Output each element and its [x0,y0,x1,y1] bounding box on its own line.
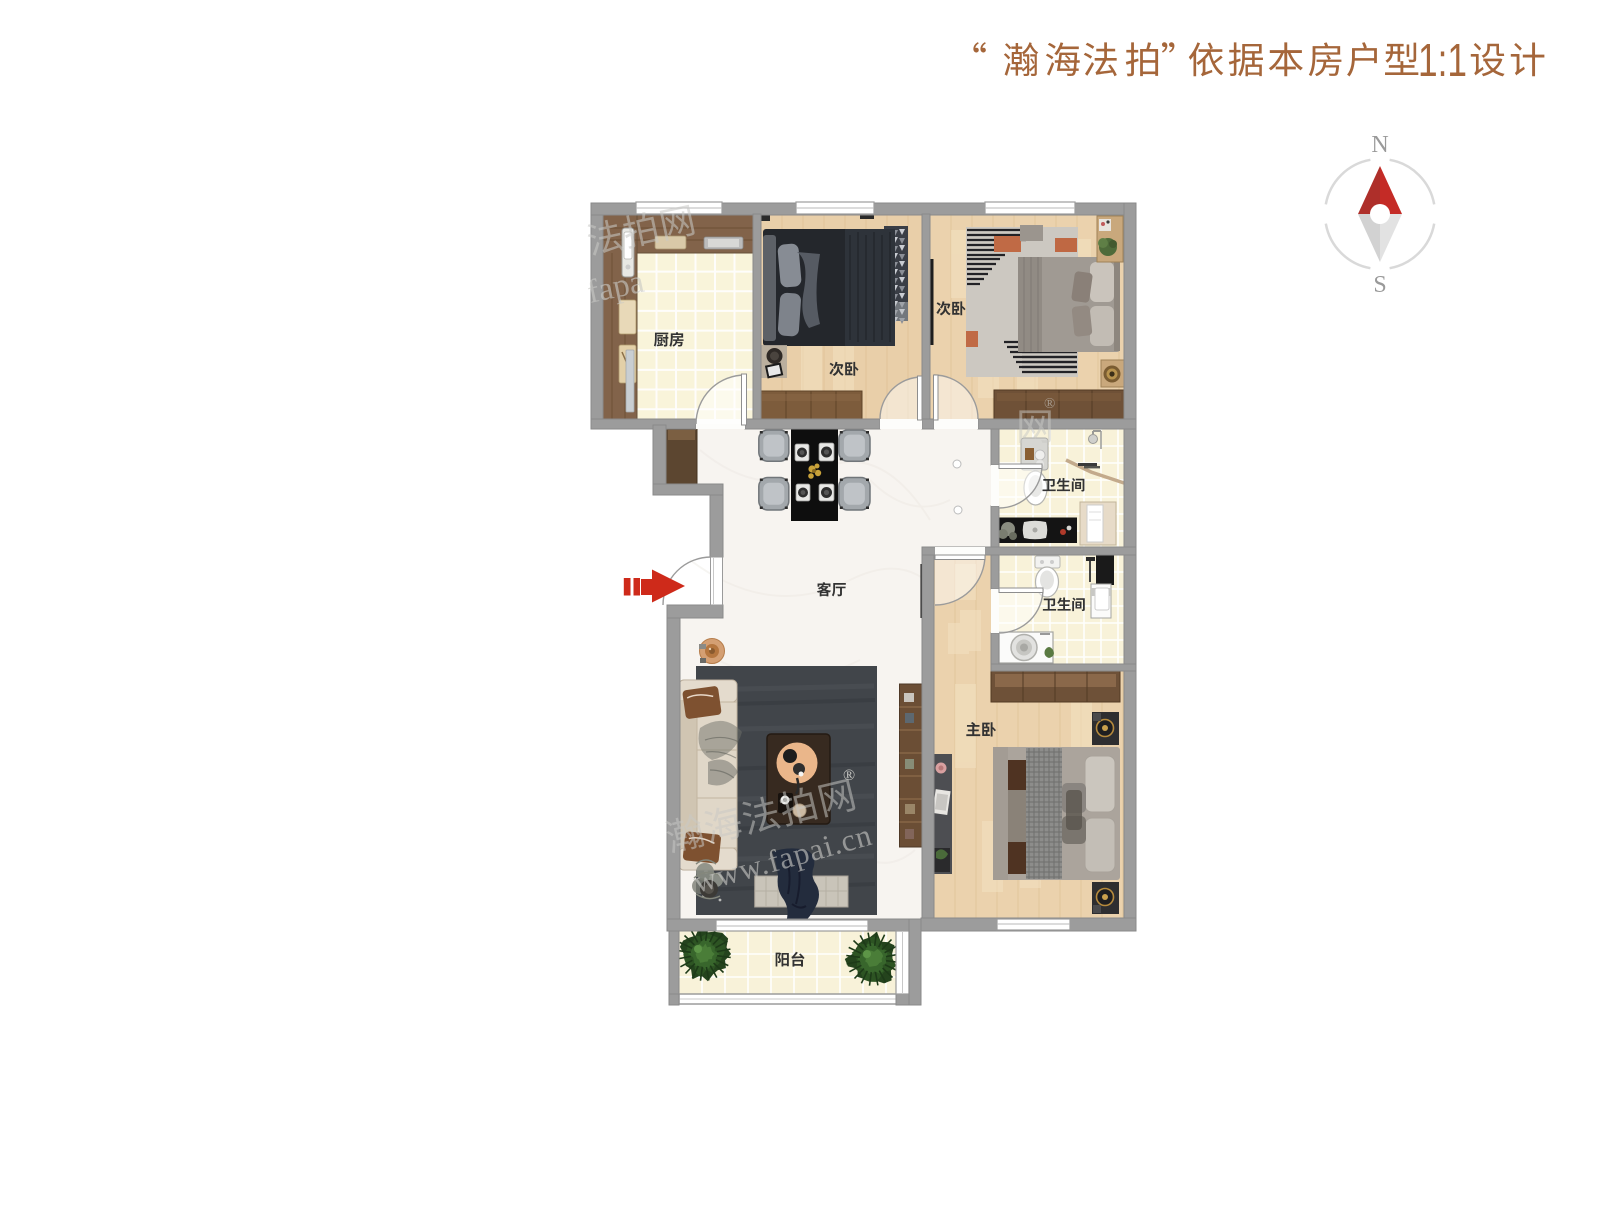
svg-text:1:1: 1:1 [1418,34,1467,86]
svg-text:N: N [1371,132,1388,158]
svg-text:®: ® [1044,396,1055,412]
svg-text:S: S [1373,272,1386,298]
svg-text:®: ® [843,767,855,784]
